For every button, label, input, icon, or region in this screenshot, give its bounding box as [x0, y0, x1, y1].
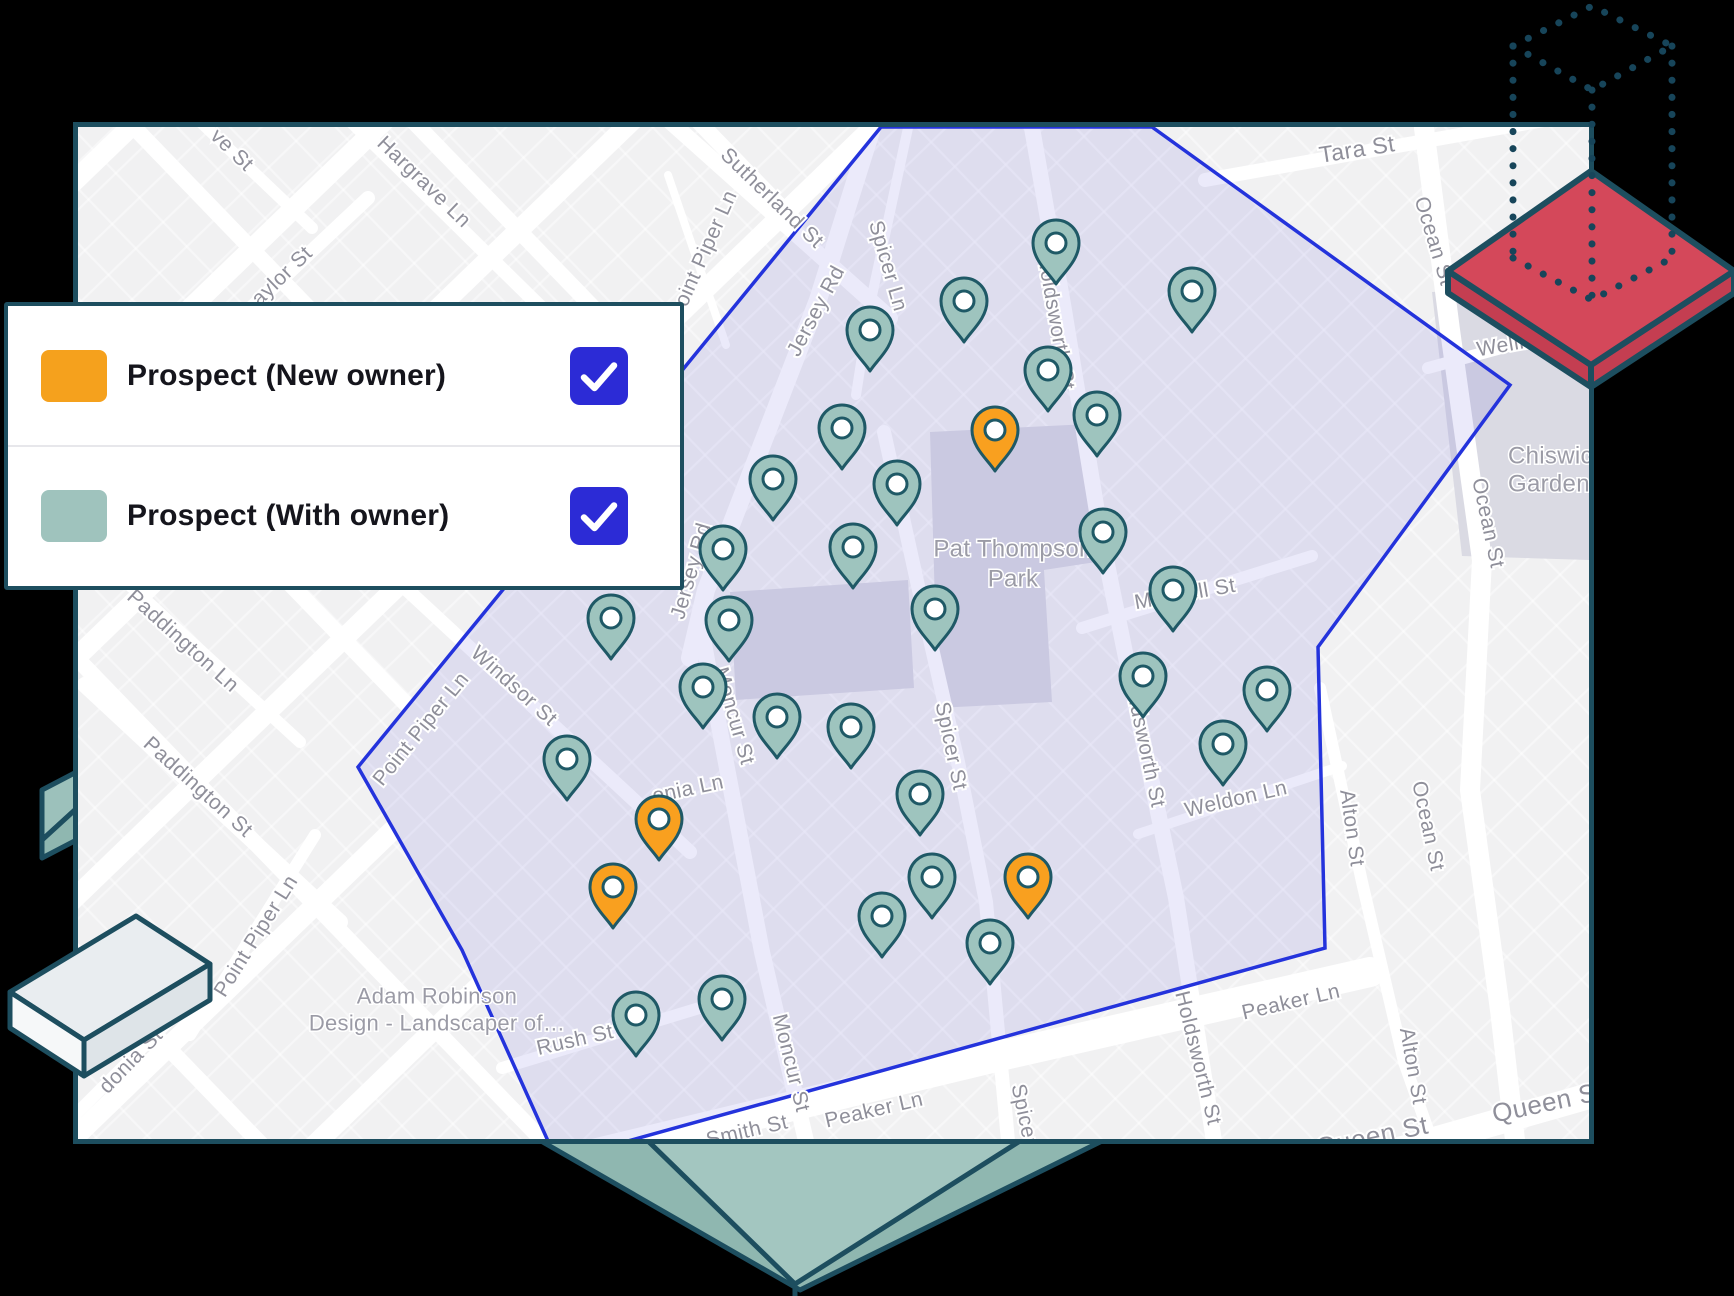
place-label: Chiswick: [1508, 443, 1589, 470]
with-owner-checkbox[interactable]: [570, 487, 628, 545]
place-label: Design - Landscaper of…: [309, 1011, 565, 1036]
legend-label: Prospect (New owner): [127, 359, 446, 393]
legend-row-prospect-with-owner[interactable]: Prospect (With owner): [8, 446, 680, 586]
place-label: Park: [988, 566, 1039, 593]
checkmark-icon: [570, 487, 628, 545]
map[interactable]: ve StHargrave Lnaylor StSutherland StPoi…: [78, 127, 1589, 1139]
legend-row-prospect-new-owner[interactable]: Prospect (New owner): [8, 306, 680, 446]
place-label: Pat Thompson: [933, 536, 1092, 563]
hero-canvas: ve StHargrave Lnaylor StSutherland StPoi…: [0, 0, 1734, 1296]
new-owner-swatch: [41, 350, 107, 402]
place-label: Gardens: [1508, 471, 1589, 498]
legend-card: Prospect (New owner) Prospect (With owne…: [4, 302, 684, 590]
with-owner-swatch: [41, 490, 107, 542]
checkmark-icon: [570, 347, 628, 405]
legend-label: Prospect (With owner): [127, 499, 449, 533]
place-label: Adam Robinson: [357, 984, 517, 1009]
teal-diamond-3d: [541, 1141, 1102, 1296]
new-owner-checkbox[interactable]: [570, 347, 628, 405]
map-canvas[interactable]: ve StHargrave Lnaylor StSutherland StPoi…: [73, 122, 1594, 1144]
